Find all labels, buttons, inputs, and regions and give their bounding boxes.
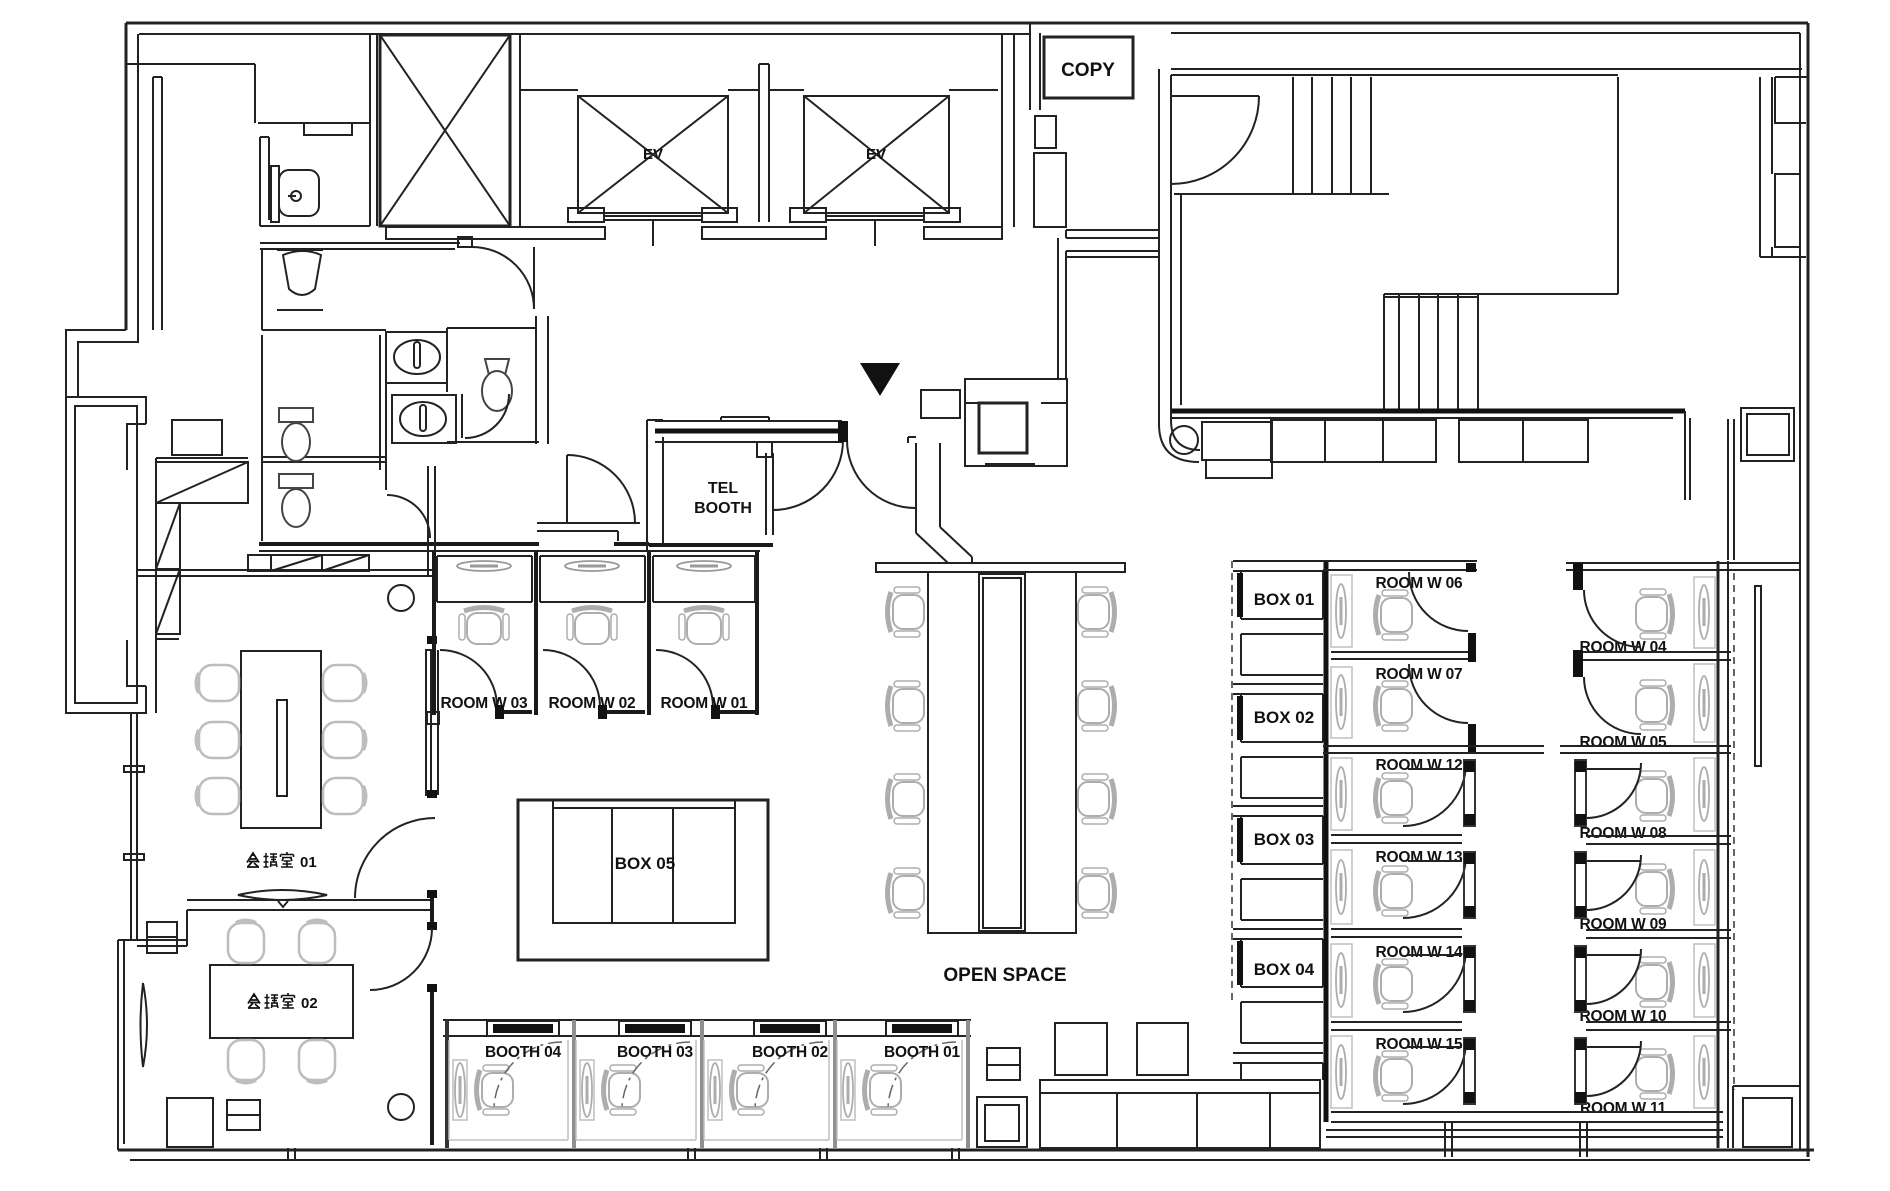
svg-text:ROOM W 05: ROOM W 05 — [1580, 734, 1667, 751]
svg-text:ROOM W 03: ROOM W 03 — [441, 695, 528, 712]
svg-text:COPY: COPY — [1061, 60, 1115, 81]
svg-text:BOX 01: BOX 01 — [1254, 590, 1314, 609]
svg-text:BOOTH 03: BOOTH 03 — [617, 1044, 693, 1061]
svg-text:BOOTH 04: BOOTH 04 — [485, 1044, 561, 1061]
svg-text:BOOTH 01: BOOTH 01 — [884, 1044, 960, 1061]
svg-text:OPEN SPACE: OPEN SPACE — [943, 965, 1066, 986]
svg-text:ROOM W 06: ROOM W 06 — [1376, 575, 1463, 592]
svg-text:ROOM W 07: ROOM W 07 — [1376, 666, 1463, 683]
svg-text:EV: EV — [866, 146, 886, 163]
svg-text:BOX 04: BOX 04 — [1254, 960, 1315, 979]
svg-text:BOX 05: BOX 05 — [615, 854, 675, 873]
svg-text:ROOM W 08: ROOM W 08 — [1580, 825, 1667, 842]
svg-text:BOX 03: BOX 03 — [1254, 830, 1314, 849]
svg-text:ROOM W 02: ROOM W 02 — [549, 695, 636, 712]
svg-text:02: 02 — [301, 995, 318, 1012]
svg-text:ROOM W 15: ROOM W 15 — [1376, 1036, 1463, 1053]
svg-text:ROOM W 11: ROOM W 11 — [1580, 1100, 1667, 1117]
svg-text:ROOM W 01: ROOM W 01 — [661, 695, 748, 712]
svg-text:ROOM W 12: ROOM W 12 — [1376, 757, 1463, 774]
svg-text:BOOTH 02: BOOTH 02 — [752, 1044, 828, 1061]
svg-text:ROOM W 14: ROOM W 14 — [1376, 944, 1463, 961]
svg-text:EV: EV — [643, 146, 663, 163]
svg-text:BOOTH: BOOTH — [694, 500, 752, 517]
svg-text:TEL: TEL — [708, 480, 738, 497]
svg-text:ROOM W 13: ROOM W 13 — [1376, 849, 1463, 866]
svg-text:BOX 02: BOX 02 — [1254, 708, 1314, 727]
svg-text:ROOM W 04: ROOM W 04 — [1580, 639, 1667, 656]
svg-text:01: 01 — [300, 854, 317, 871]
